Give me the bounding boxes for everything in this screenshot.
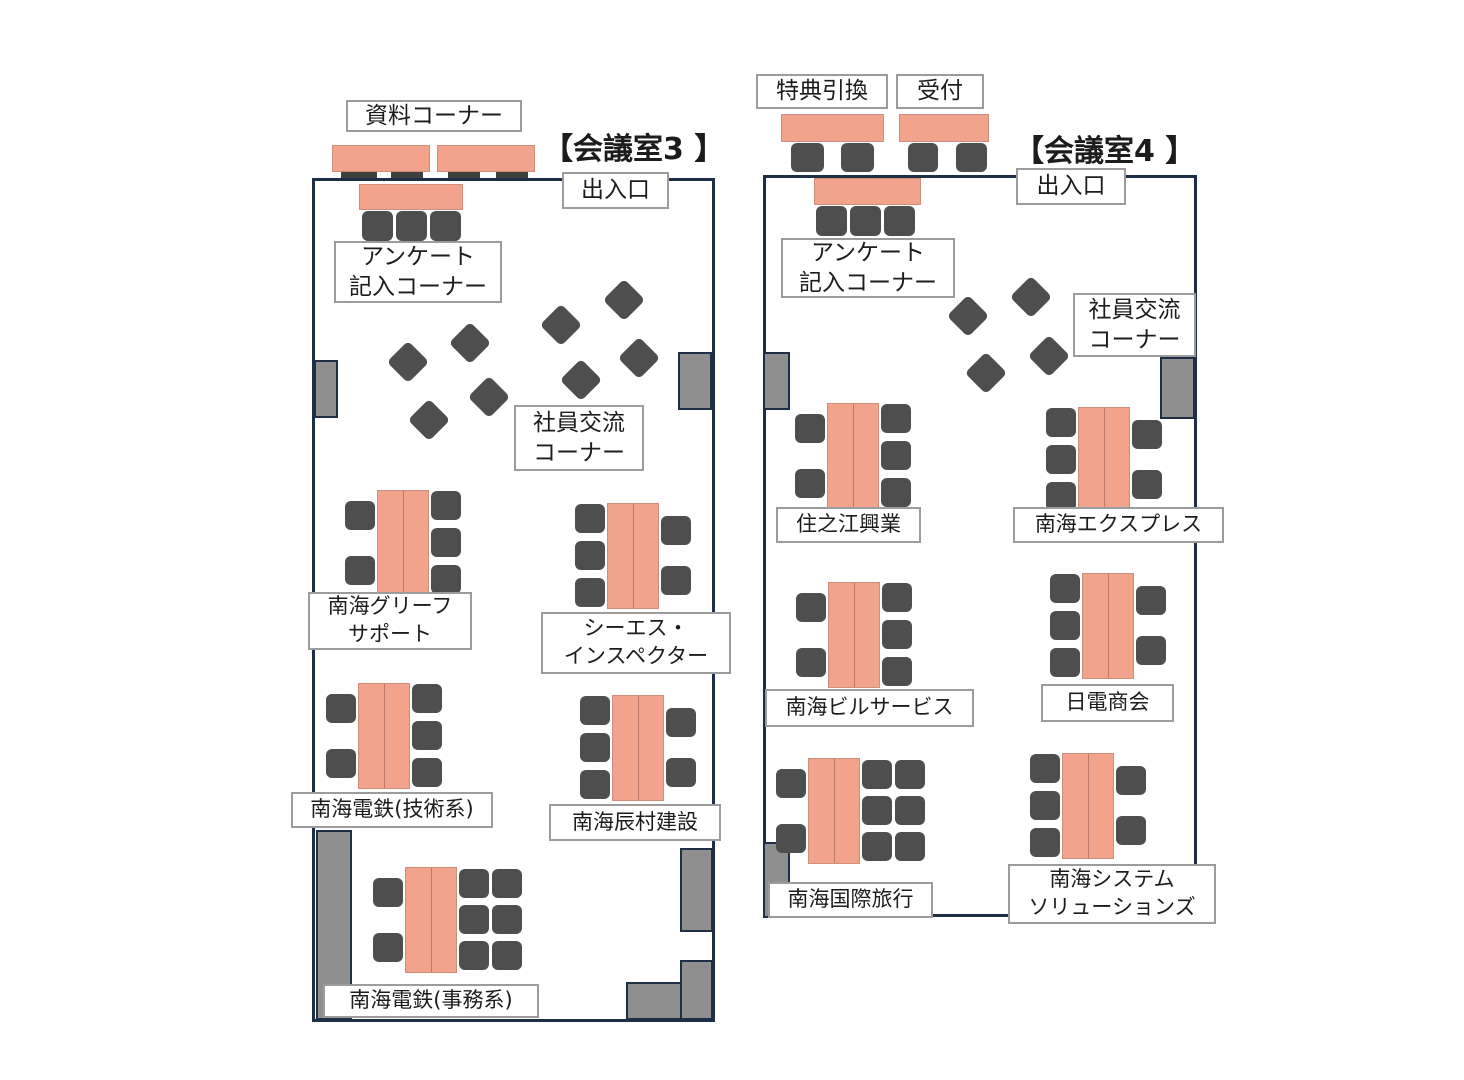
chair-icon [666,708,696,737]
room3-exchange-label: 社員交流 コーナー [514,405,644,471]
chair-icon [1132,470,1162,499]
chair-icon [1046,408,1076,437]
chair-icon [580,733,610,762]
exchange-label-line1: 社員交流 [533,408,625,438]
chair-icon [459,869,489,898]
exchange-label-line1: 社員交流 [1089,295,1181,325]
reception-text: 受付 [917,76,963,106]
booth-table [612,695,664,801]
booth-label: 南海システムソリューションズ [1008,864,1216,924]
reward-table [781,114,884,142]
booth-table [1082,573,1134,679]
chair-icon [373,878,403,907]
chair-icon [816,206,847,236]
chair-icon [796,648,826,677]
chair-icon [362,211,393,241]
room4-entrance-label: 出入口 [1016,168,1126,205]
chair-icon [956,143,987,172]
booth-label: 南海辰村建設 [549,804,721,841]
booth-label-text: ソリューションズ [1028,894,1195,922]
chair-icon [791,143,824,172]
booth-label-text: シーエス・ [584,615,689,643]
pillar [1160,357,1195,419]
chair-icon [430,211,461,241]
chair-icon [412,758,442,787]
pillar [626,982,682,1020]
chair-icon [431,565,461,594]
chair-icon [575,504,605,533]
booth-label-text: 南海エクスプレス [1035,511,1202,539]
chair-icon [492,941,522,970]
booth-label-text: 南海グリーフ [328,593,453,621]
chair-icon [882,620,912,649]
survey-table [359,184,463,210]
booth-label-text: 南海国際旅行 [788,886,914,914]
chair-icon [882,583,912,612]
chair-icon [862,832,892,861]
chair-icon [396,211,427,241]
entrance-text: 出入口 [581,175,650,205]
chair-icon [661,566,691,595]
chair-icon [881,478,911,507]
room4-exchange-label: 社員交流 コーナー [1073,293,1196,357]
chair-icon [345,501,375,530]
materials-table [332,145,430,172]
booth-table [377,490,429,596]
chair-icon [459,941,489,970]
chair-icon [862,796,892,825]
chair-icon [373,933,403,962]
reward-text: 特典引換 [776,76,868,106]
chair-icon [881,404,911,433]
floorplan-canvas: 【会議室3 】 【会議室4 】 資料コーナー 出入口 アンケート 記入コーナー … [0,0,1464,1080]
booth-label-text: 日電商会 [1066,689,1150,717]
booth-label: 南海グリーフサポート [308,592,472,650]
survey-label-line2: 記入コーナー [799,268,937,298]
chair-icon [1116,816,1146,845]
entrance-text: 出入口 [1037,171,1106,201]
chair-icon [580,696,610,725]
booth-label: シーエス・インスペクター [541,612,731,674]
chair-icon [841,143,874,172]
booth-label-text: インスペクター [564,643,708,671]
chair-icon [862,760,892,789]
chair-icon [412,721,442,750]
booth-label-text: 南海ビルサービス [786,694,954,722]
pillar [678,352,712,410]
survey-label-line1: アンケート [361,242,475,272]
chair-icon [412,684,442,713]
reception-label: 受付 [896,74,984,109]
booth-label-text: 南海システム [1049,866,1174,894]
chair-icon [459,905,489,934]
chair-icon [1050,574,1080,603]
room4-title: 【会議室4 】 [1014,126,1195,170]
chair-icon [580,770,610,799]
chair-icon [431,528,461,557]
chair-icon [492,869,522,898]
booth-label-text: サポート [348,621,432,649]
room3-survey-label: アンケート 記入コーナー [334,241,502,303]
chair-icon [850,206,881,236]
chair-icon [431,491,461,520]
chair-icon [1136,586,1166,615]
chair-icon [345,556,375,585]
chair-icon [661,516,691,545]
booth-table [808,758,860,864]
chair-icon [1030,754,1060,783]
chair-icon [881,441,911,470]
room3-entrance-label: 出入口 [562,172,669,209]
booth-table [828,582,880,688]
room3-title: 【会議室3 】 [543,124,724,168]
booth-label: 住之江興業 [776,507,921,543]
booth-label: 南海国際旅行 [768,882,933,918]
chair-icon [666,758,696,787]
survey-label-line1: アンケート [811,238,925,268]
reward-label: 特典引換 [756,74,888,109]
chair-icon [326,694,356,723]
booth-label: 南海ビルサービス [765,689,974,727]
chair-icon [1136,636,1166,665]
chair-icon [776,769,806,798]
booth-label: 南海エクスプレス [1013,507,1224,543]
booth-label-text: 南海電鉄(技術系) [310,796,473,824]
chair-icon [795,414,825,443]
booth-label-text: 南海辰村建設 [572,809,698,837]
booth-label-text: 南海電鉄(事務系) [349,987,512,1015]
materials-table [437,145,535,172]
materials-corner-label: 資料コーナー [346,100,522,132]
booth-table [1078,407,1130,513]
room4-survey-label: アンケート 記入コーナー [781,238,955,298]
chair-icon [882,657,912,686]
pillar [763,352,790,410]
survey-table [814,178,921,205]
pillar [314,360,338,418]
survey-label-line2: 記入コーナー [349,272,487,302]
booth-table [607,503,659,609]
pillar [680,960,713,1020]
chair-icon [884,206,915,236]
booth-table [405,867,457,973]
chair-icon [1050,611,1080,640]
booth-label: 日電商会 [1041,684,1174,722]
reception-table [899,114,989,142]
chair-icon [575,541,605,570]
chair-icon [492,905,522,934]
booth-table [827,403,879,509]
chair-icon [575,578,605,607]
chair-icon [908,143,938,172]
chair-icon [895,760,925,789]
chair-icon [1030,828,1060,857]
chair-icon [776,824,806,853]
chair-icon [795,469,825,498]
booth-table [358,683,410,789]
chair-icon [1030,791,1060,820]
booth-label: 南海電鉄(事務系) [323,984,539,1018]
booth-table [1062,753,1114,859]
exchange-label-line2: コーナー [533,438,625,468]
chair-icon [796,593,826,622]
chair-icon [1046,445,1076,474]
booth-label: 南海電鉄(技術系) [291,792,493,828]
chair-icon [895,796,925,825]
exchange-label-line2: コーナー [1089,325,1181,355]
pillar [680,848,713,932]
chair-icon [895,832,925,861]
chair-icon [1050,648,1080,677]
booth-label-text: 住之江興業 [796,511,901,539]
chair-icon [326,749,356,778]
chair-icon [1132,420,1162,449]
materials-corner-text: 資料コーナー [365,101,503,131]
chair-icon [1116,766,1146,795]
